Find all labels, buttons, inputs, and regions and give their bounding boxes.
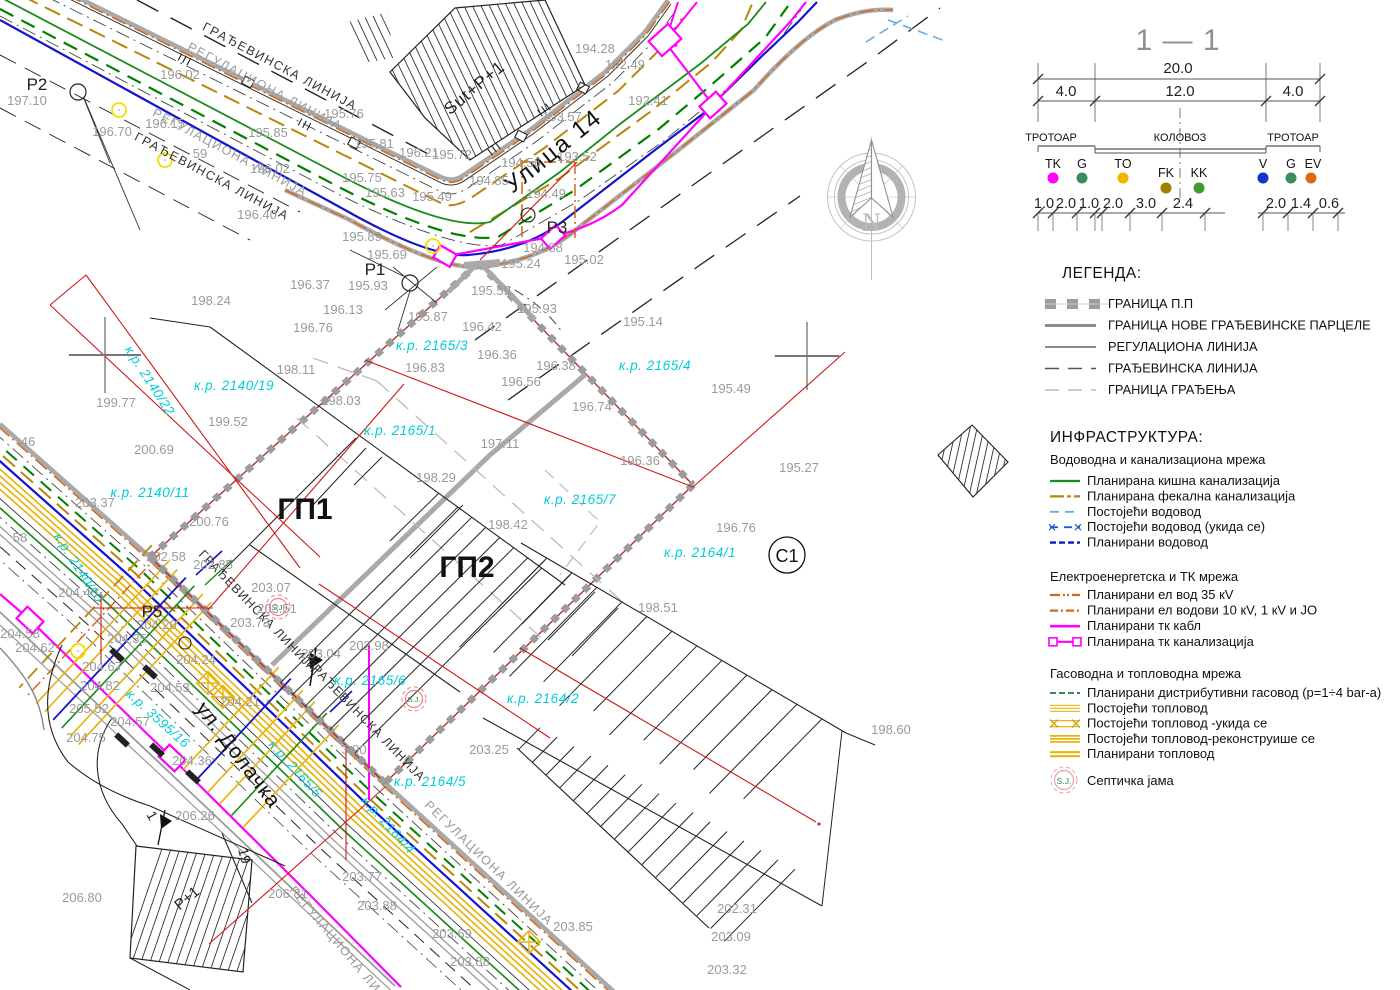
svg-text:199.77: 199.77 [96,395,136,410]
svg-text:Планирани тк кабл: Планирани тк кабл [1087,618,1201,633]
svg-text:0.6: 0.6 [1319,196,1339,212]
svg-text:203.88: 203.88 [357,898,397,913]
svg-text:ГП1: ГП1 [277,493,332,526]
svg-text:N: N [862,208,881,237]
svg-text:P3: P3 [547,218,568,237]
svg-text:206.80: 206.80 [62,890,102,905]
svg-text:Постојећи топловод-реконструиш: Постојећи топловод-реконструише се [1087,731,1315,746]
svg-text:к.р. 2165/3: к.р. 2165/3 [396,338,468,353]
svg-text:196.76: 196.76 [293,320,333,335]
svg-text:58: 58 [13,530,27,545]
svg-text:ГРАНИЦА НОВЕ ГРАЂЕВИНСКЕ ПАРЦЕ: ГРАНИЦА НОВЕ ГРАЂЕВИНСКЕ ПАРЦЕЛЕ [1108,318,1371,333]
svg-text:Водоводна и канализациона мреж: Водоводна и канализациона мрежа [1050,452,1266,467]
svg-text:4.0: 4.0 [1283,83,1304,100]
svg-text:197.10: 197.10 [7,93,47,108]
svg-text:195.72: 195.72 [432,147,472,162]
svg-text:196.74: 196.74 [572,399,612,414]
svg-text:204.57: 204.57 [110,714,150,729]
svg-text:196.13: 196.13 [323,302,363,317]
svg-text:194.88: 194.88 [523,240,563,255]
svg-text:204.82: 204.82 [80,678,120,693]
svg-text:203.51: 203.51 [257,601,297,616]
svg-text:198.24: 198.24 [191,293,231,308]
svg-text:198.42: 198.42 [488,517,528,532]
svg-text:ГРАНИЦА ГРАЂЕЊА: ГРАНИЦА ГРАЂЕЊА [1108,382,1236,397]
svg-text:Постојећи водовод: Постојећи водовод [1087,504,1202,519]
svg-text:203.07: 203.07 [251,580,291,595]
svg-text:202.31: 202.31 [717,901,757,916]
svg-text:195.14: 195.14 [623,314,663,329]
svg-text:TO: TO [1114,157,1131,171]
svg-text:к.р. 2164/5: к.р. 2164/5 [394,774,466,789]
svg-text:Планирана кишна канализација: Планирана кишна канализација [1087,473,1281,488]
svg-text:195.76: 195.76 [324,106,364,121]
svg-text:195.59: 195.59 [471,283,511,298]
svg-text:199.52: 199.52 [208,414,248,429]
svg-text:198.03: 198.03 [321,393,361,408]
svg-text:206.81: 206.81 [268,886,308,901]
svg-text:204.36: 204.36 [172,753,212,768]
svg-text:193.57: 193.57 [542,109,582,124]
svg-text:V: V [1259,157,1268,171]
svg-text:200.76: 200.76 [189,514,229,529]
svg-text:P1: P1 [365,260,386,279]
svg-text:196.70: 196.70 [92,124,132,139]
svg-text:ИНФРАСТРУКТУРА:: ИНФРАСТРУКТУРА: [1050,429,1203,446]
svg-text:204.58: 204.58 [0,626,40,641]
svg-text:195.93: 195.93 [517,301,557,316]
svg-text:204.62: 204.62 [15,640,55,655]
svg-text:46: 46 [21,434,35,449]
svg-text:204.67: 204.67 [82,659,122,674]
svg-text:ГРАЂЕВИНСКА ЛИНИЈА: ГРАЂЕВИНСКА ЛИНИЈА [1108,361,1258,376]
svg-text:203.32: 203.32 [707,962,747,977]
svg-text:РЕГУЛАЦИОНА ЛИНИЈА: РЕГУЛАЦИОНА ЛИНИЈА [1108,339,1258,354]
svg-text:195.63: 195.63 [365,185,405,200]
svg-text:198.29: 198.29 [416,470,456,485]
svg-text:204.24: 204.24 [176,652,216,667]
svg-text:196.36: 196.36 [477,347,517,362]
svg-text:203.88: 203.88 [450,954,490,969]
svg-text:206.26: 206.26 [175,808,215,823]
svg-text:Планирана фекална канализација: Планирана фекална канализација [1087,488,1296,503]
svg-text:KK: KK [1191,166,1208,180]
svg-text:194.56: 194.56 [501,155,541,170]
svg-text:1.4: 1.4 [1291,196,1311,212]
svg-text:203.85: 203.85 [553,919,593,934]
svg-text:Планирани топловод: Планирани топловод [1087,746,1215,761]
svg-text:196.56: 196.56 [501,374,541,389]
svg-text:к.р. 2140/11: к.р. 2140/11 [111,485,190,500]
svg-text:196.76: 196.76 [716,520,756,535]
svg-text:1 — 1: 1 — 1 [1135,24,1220,57]
svg-text:196.36: 196.36 [620,453,660,468]
svg-text:193.52: 193.52 [557,149,597,164]
svg-text:203.09: 203.09 [711,929,751,944]
svg-text:ЛЕГЕНДА:: ЛЕГЕНДА: [1062,265,1142,282]
svg-text:Постојећи топловод: Постојећи топловод [1087,700,1208,715]
svg-text:2.0: 2.0 [1266,196,1286,212]
svg-text:195.81: 195.81 [354,136,394,151]
svg-text:Планирани ел вод 35 кV: Планирани ел вод 35 кV [1087,587,1234,602]
svg-text:203.69: 203.69 [432,926,472,941]
svg-text:Постојећи топловод -укида се: Постојећи топловод -укида се [1087,716,1267,731]
svg-text:к.р. 2165/1: к.р. 2165/1 [364,423,436,438]
svg-text:196.83: 196.83 [405,360,445,375]
svg-text:Електроенергетска и ТК мрежа: Електроенергетска и ТК мрежа [1050,569,1239,584]
svg-text:192.49: 192.49 [605,57,645,72]
svg-text:196.38: 196.38 [536,358,576,373]
svg-text:EV: EV [1305,157,1322,171]
svg-text:200.69: 200.69 [134,442,174,457]
svg-text:Планирани ел водови 10 кV, 1 к: Планирани ел водови 10 кV, 1 кV и ЈО [1087,603,1317,618]
svg-text:194.49: 194.49 [526,186,566,201]
svg-text:4.0: 4.0 [1056,83,1077,100]
svg-text:194.28: 194.28 [575,41,615,56]
svg-text:3,90: 3,90 [341,742,366,757]
svg-text:195.93: 195.93 [348,278,388,293]
svg-text:195.49: 195.49 [412,189,452,204]
svg-text:196.02: 196.02 [250,161,290,176]
svg-text:204.53: 204.53 [150,680,190,695]
svg-text:Планирана тк канализација: Планирана тк канализација [1087,634,1255,649]
svg-text:ТРОТОАР: ТРОТОАР [1267,132,1319,144]
svg-text:204.21: 204.21 [220,694,260,709]
svg-text:12.0: 12.0 [1165,83,1194,100]
svg-text:203.37: 203.37 [75,495,115,510]
svg-text:1.0: 1.0 [1079,196,1099,212]
svg-text:195.02: 195.02 [564,252,604,267]
svg-text:202.98: 202.98 [349,638,389,653]
svg-text:ТРОТОАР: ТРОТОАР [1025,132,1077,144]
svg-text:к.р. 2140/19: к.р. 2140/19 [194,378,274,393]
svg-text:20.0: 20.0 [1163,60,1192,77]
svg-text:2.0: 2.0 [1056,196,1076,212]
svg-text:Планирани дистрибутивни гасово: Планирани дистрибутивни гасовод (р=1÷4 b… [1087,685,1381,700]
svg-text:203.04: 203.04 [301,646,341,661]
svg-text:Гасоводна и топловодна мрежа: Гасоводна и топловодна мрежа [1050,666,1242,681]
svg-text:196.37: 196.37 [290,277,330,292]
svg-text:204.35: 204.35 [107,631,147,646]
svg-text:TK: TK [1045,157,1062,171]
svg-text:203.73: 203.73 [230,615,270,630]
svg-text:Постојећи водовод (укида се): Постојећи водовод (укида се) [1087,519,1265,534]
svg-text:C1: C1 [775,546,798,566]
svg-text:198.51: 198.51 [638,600,678,615]
svg-text:195.87: 195.87 [408,309,448,324]
svg-text:198.11: 198.11 [277,362,316,377]
svg-text:к.р. 2164/2: к.р. 2164/2 [507,691,579,706]
svg-text:203.77: 203.77 [342,869,382,884]
svg-text:196.40: 196.40 [237,207,277,222]
svg-text:Планирани водовод: Планирани водовод [1087,535,1208,550]
svg-text:195.89: 195.89 [342,229,382,244]
svg-text:195.75: 195.75 [342,170,382,185]
svg-text:S.J.: S.J. [1057,776,1072,786]
svg-text:ГРАНИЦА П.П: ГРАНИЦА П.П [1108,296,1193,311]
svg-text:КОЛОВОЗ: КОЛОВОЗ [1154,132,1207,144]
svg-text:204.40: 204.40 [58,585,98,600]
svg-text:2.0: 2.0 [1103,196,1123,212]
svg-text:203.25: 203.25 [469,742,509,757]
svg-text:к.р. 2164/1: к.р. 2164/1 [664,545,736,560]
svg-text:197.11: 197.11 [481,436,520,451]
svg-text:194.85: 194.85 [469,173,509,188]
svg-text:202.85: 202.85 [193,557,233,572]
svg-text:204.20: 204.20 [137,617,177,632]
svg-text:202.58: 202.58 [146,549,186,564]
svg-text:Септичка јама: Септичка јама [1087,773,1175,788]
svg-text:195.69: 195.69 [367,247,407,262]
svg-text:ГП2: ГП2 [439,551,494,584]
svg-text:195.85: 195.85 [248,125,288,140]
svg-text:1.0: 1.0 [1034,196,1054,212]
svg-text:204.75: 204.75 [66,730,106,745]
svg-text:G: G [1286,157,1296,171]
svg-text:к.р. 2165/6: к.р. 2165/6 [334,673,406,688]
svg-text:192.41: 192.41 [628,93,668,108]
svg-text:2.4: 2.4 [1173,196,1193,212]
svg-text:195.27: 195.27 [779,460,819,475]
svg-text:S.J.: S.J. [408,695,421,704]
svg-text:G: G [1077,157,1087,171]
svg-text:196.42: 196.42 [462,319,502,334]
svg-text:к.р. 2165/4: к.р. 2165/4 [619,358,691,373]
svg-text:196.02: 196.02 [160,67,200,82]
svg-text:3.0: 3.0 [1136,196,1156,212]
svg-text:198.60: 198.60 [871,722,911,737]
svg-text:59: 59 [193,146,207,161]
svg-text:P2: P2 [27,75,48,94]
svg-text:195.24: 195.24 [501,256,541,271]
svg-text:FK: FK [1158,166,1175,180]
svg-text:196.15: 196.15 [145,116,185,131]
svg-text:к.р. 2165/7: к.р. 2165/7 [544,492,616,507]
svg-text:195.49: 195.49 [711,381,751,396]
svg-text:205.52: 205.52 [69,701,109,716]
